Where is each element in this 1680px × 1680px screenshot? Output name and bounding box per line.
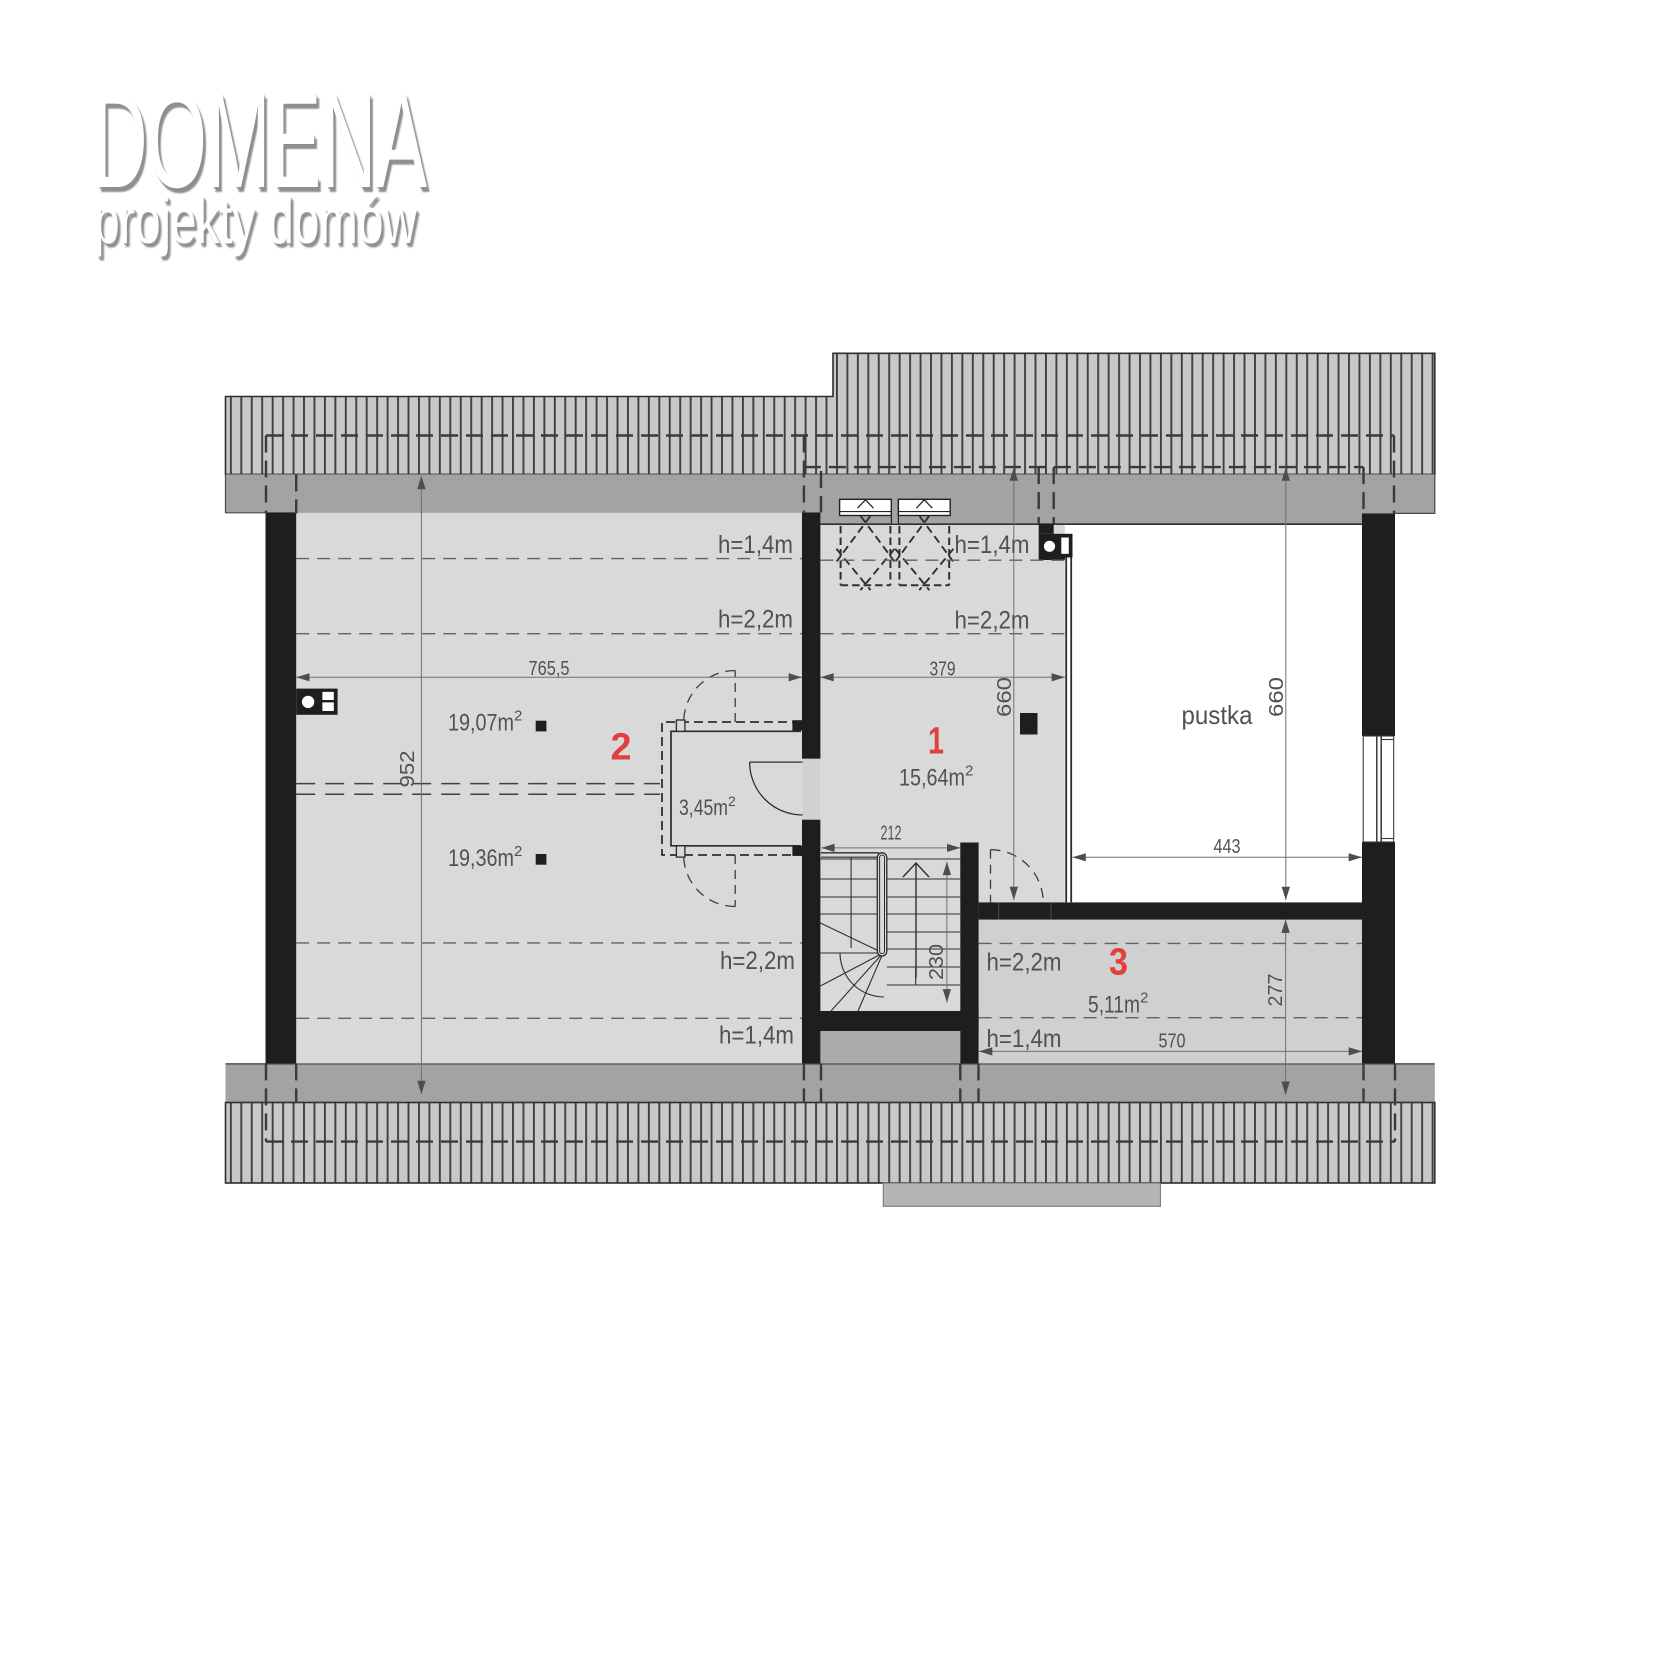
svg-text:5,11m2: 5,11m2 [1088, 990, 1148, 1019]
svg-text:230: 230 [926, 944, 948, 980]
svg-text:3: 3 [1109, 941, 1128, 983]
svg-text:h=2,2m: h=2,2m [955, 607, 1030, 635]
svg-text:h=1,4m: h=1,4m [719, 1022, 794, 1050]
svg-text:15,64m2: 15,64m2 [899, 763, 973, 792]
svg-text:h=2,2m: h=2,2m [987, 949, 1062, 977]
svg-text:660: 660 [1266, 677, 1288, 717]
svg-text:952: 952 [397, 751, 419, 788]
svg-text:pustka: pustka [1182, 700, 1253, 730]
svg-text:443: 443 [1214, 836, 1241, 858]
svg-text:379: 379 [930, 659, 956, 681]
svg-text:h=1,4m: h=1,4m [955, 531, 1030, 559]
svg-text:19,07m2: 19,07m2 [448, 708, 522, 737]
svg-text:277: 277 [1265, 974, 1287, 1007]
svg-text:h=1,4m: h=1,4m [987, 1025, 1062, 1053]
svg-text:19,36m2: 19,36m2 [448, 843, 522, 872]
svg-text:h=2,2m: h=2,2m [718, 606, 793, 634]
svg-text:h=2,2m: h=2,2m [720, 947, 795, 975]
svg-text:1: 1 [928, 721, 944, 763]
svg-text:570: 570 [1159, 1031, 1186, 1053]
svg-text:212: 212 [881, 823, 902, 845]
svg-text:660: 660 [994, 677, 1016, 717]
svg-text:765,5: 765,5 [529, 658, 570, 680]
svg-text:3,45m2: 3,45m2 [679, 793, 736, 820]
svg-text:h=1,4m: h=1,4m [718, 531, 793, 559]
svg-text:2: 2 [611, 726, 632, 768]
